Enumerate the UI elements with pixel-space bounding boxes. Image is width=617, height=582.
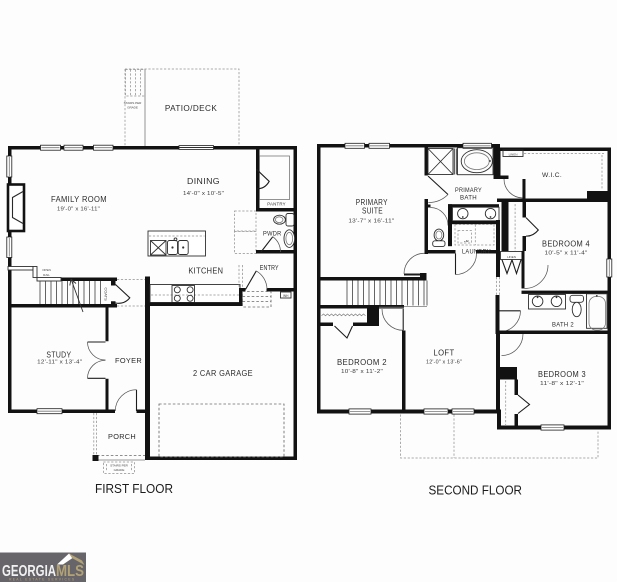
svg-text:PRIMARY: PRIMARY [356,198,388,207]
svg-text:14'-0" x 10'-5": 14'-0" x 10'-5" [183,191,224,197]
svg-text:FIRST FLOOR: FIRST FLOOR [95,482,173,496]
svg-text:2 CAR GARAGE: 2 CAR GARAGE [193,369,253,378]
svg-text:WH: WH [283,294,289,298]
svg-text:LAUNDRY: LAUNDRY [462,248,491,255]
svg-text:SECOND FLOOR: SECOND FLOOR [429,484,523,498]
svg-text:10'-8" x 11'-2": 10'-8" x 11'-2" [341,369,383,375]
svg-text:PWDR: PWDR [263,231,282,238]
svg-text:PORCH: PORCH [108,432,136,441]
svg-text:11'-8" x 12'-1": 11'-8" x 12'-1" [540,381,584,387]
svg-text:GRADE: GRADE [114,468,125,472]
svg-text:GRADE: GRADE [127,106,138,110]
svg-text:FOYER: FOYER [115,356,142,365]
svg-text:SUITE: SUITE [362,207,383,216]
svg-text:ENTRY: ENTRY [260,265,279,272]
svg-text:PANTRY: PANTRY [267,202,286,207]
svg-text:13'-7" x 16'-11": 13'-7" x 16'-11" [348,219,394,225]
svg-text:STAIRS PER: STAIRS PER [124,101,142,105]
svg-text:BEDROOM 3: BEDROOM 3 [538,370,586,379]
svg-text:BEDROOM 4: BEDROOM 4 [542,240,590,249]
svg-text:FAMILY ROOM: FAMILY ROOM [51,195,107,204]
svg-text:KITCHEN: KITCHEN [188,267,223,276]
svg-text:DINING: DINING [187,177,220,186]
svg-text:LINEN: LINEN [509,152,518,156]
svg-text:10'-5" x 11'-4": 10'-5" x 11'-4" [545,250,588,256]
svg-text:12'-11" x 13'-4": 12'-11" x 13'-4" [37,360,82,366]
svg-text:STAIRS PER: STAIRS PER [110,463,128,467]
svg-text:BATH 2: BATH 2 [552,322,574,329]
svg-text:REAL ESTATE SERVICES: REAL ESTATE SERVICES [9,578,75,582]
svg-text:PRIMARY: PRIMARY [455,187,482,194]
svg-text:OPEN: OPEN [42,268,51,272]
svg-text:LOFT: LOFT [434,349,455,358]
svg-text:COATS: COATS [104,287,109,301]
svg-text:19'-0" x 16'-11": 19'-0" x 16'-11" [57,206,100,212]
svg-text:STUDY: STUDY [46,350,71,359]
svg-text:12'-0" x 13'-6": 12'-0" x 13'-6" [426,359,462,365]
svg-text:PATIO/DECK: PATIO/DECK [165,104,218,113]
svg-text:W.I.C.: W.I.C. [542,172,562,179]
svg-text:RAIL: RAIL [43,273,50,277]
svg-text:BEDROOM 2: BEDROOM 2 [337,358,387,367]
svg-text:BATH: BATH [460,195,477,202]
svg-text:LINEN: LINEN [507,255,516,259]
